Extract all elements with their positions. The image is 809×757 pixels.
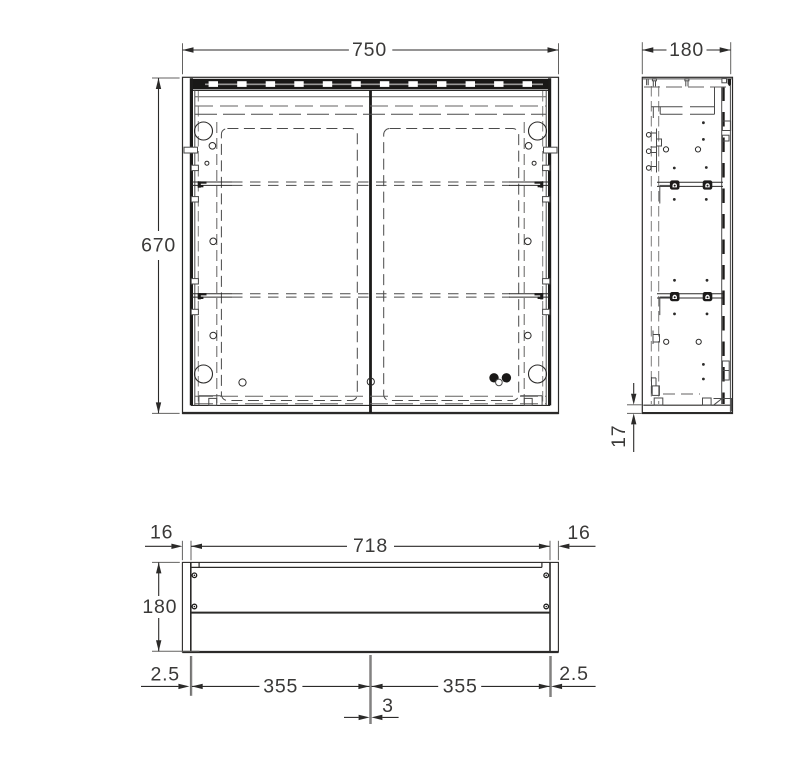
svg-text:355: 355: [263, 676, 298, 698]
svg-text:180: 180: [142, 596, 177, 618]
svg-text:718: 718: [353, 535, 388, 557]
svg-text:16: 16: [150, 522, 173, 544]
svg-text:750: 750: [352, 39, 387, 61]
svg-text:180: 180: [669, 39, 704, 61]
svg-text:670: 670: [141, 234, 176, 256]
svg-text:355: 355: [443, 676, 478, 698]
svg-text:3: 3: [382, 695, 394, 717]
svg-text:2.5: 2.5: [150, 664, 180, 686]
svg-text:17: 17: [608, 425, 630, 448]
svg-text:16: 16: [567, 522, 590, 544]
svg-text:2.5: 2.5: [559, 663, 589, 685]
